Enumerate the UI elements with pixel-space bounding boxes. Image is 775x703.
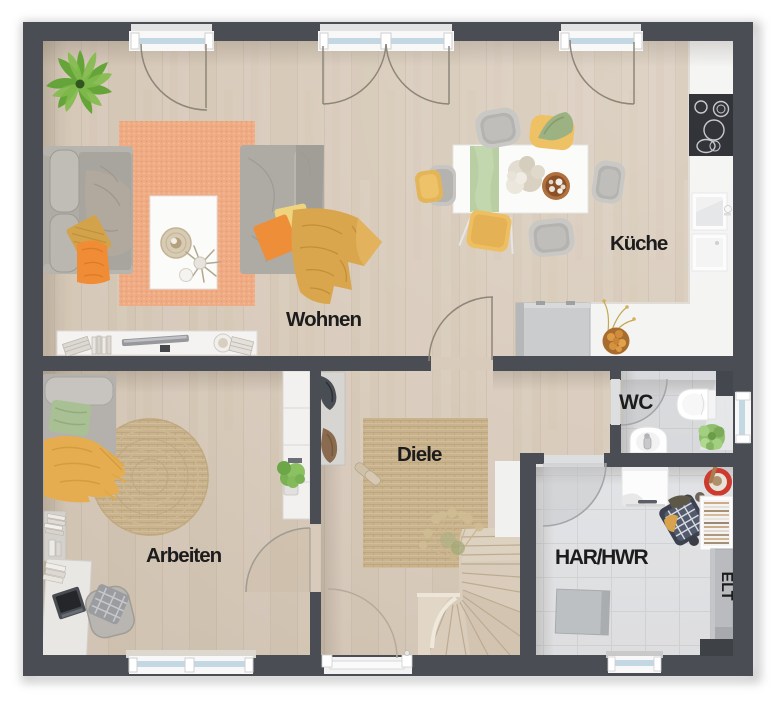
- svg-text:Diele: Diele: [397, 443, 442, 466]
- svg-text:Arbeiten: Arbeiten: [146, 544, 222, 567]
- svg-text:WC: WC: [619, 391, 653, 414]
- svg-text:Wohnen: Wohnen: [286, 308, 361, 331]
- svg-text:ELT: ELT: [718, 571, 735, 600]
- svg-text:Küche: Küche: [610, 232, 668, 255]
- svg-text:HAR/HWR: HAR/HWR: [555, 546, 649, 569]
